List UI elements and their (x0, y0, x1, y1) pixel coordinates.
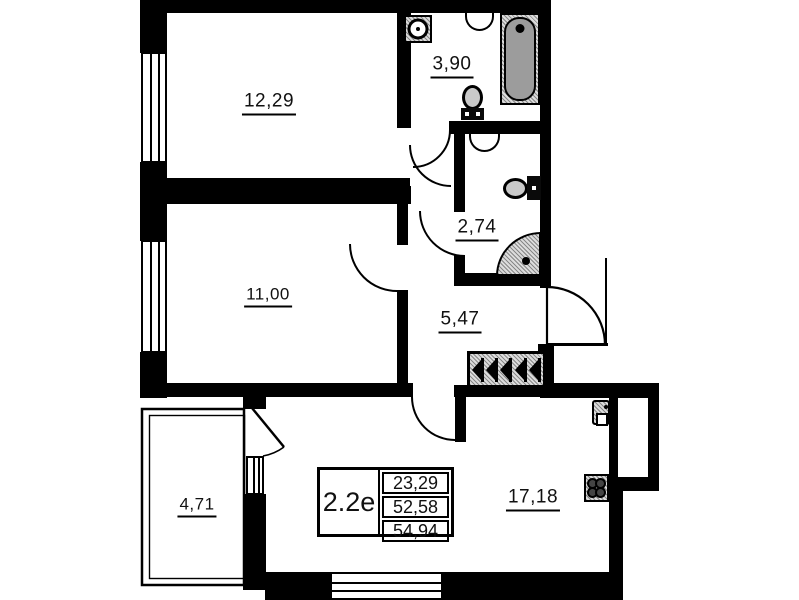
shower-drain (522, 257, 530, 265)
door-leaf (455, 397, 466, 442)
hanger-icon (486, 358, 498, 382)
door-arc-icon (263, 447, 284, 456)
room-label-hall: 5,47 (439, 309, 482, 334)
stove-icon (584, 474, 609, 502)
wall-segment (449, 121, 545, 134)
room-label-bedroom1: 12,29 (242, 91, 296, 116)
wall-segment (397, 204, 408, 245)
window-mullion (150, 54, 152, 161)
wall-segment (397, 290, 408, 384)
window-mullion (150, 242, 152, 351)
wall-segment (397, 186, 411, 204)
room-label-balcony: 4,71 (177, 495, 216, 518)
room-label-kitchen-living: 17,18 (506, 487, 560, 512)
sink-icon (465, 13, 494, 31)
tank-detail (476, 112, 480, 116)
window-mullion (258, 458, 260, 493)
window-icon (141, 240, 167, 353)
hanger-icon (500, 358, 512, 382)
window-mullion (253, 458, 255, 493)
washing-machine-icon (404, 15, 432, 43)
wall-segment (265, 572, 331, 600)
door-arc-icon (350, 244, 397, 291)
wall-segment (540, 383, 658, 398)
window-mullion (158, 242, 160, 351)
wall-segment (243, 494, 266, 590)
unit-type-label: 2.2е (320, 470, 380, 534)
window-mullion (158, 54, 160, 161)
window-mullion (332, 582, 441, 584)
hanger-icon (529, 358, 541, 382)
wall-segment (648, 383, 659, 491)
wall-segment (243, 390, 266, 409)
window-mullion (332, 590, 441, 592)
wall-segment (140, 383, 413, 397)
wall-segment (140, 0, 550, 13)
hanger-icon (472, 358, 484, 382)
door-arc-icon (413, 130, 450, 167)
shower-icon (496, 232, 541, 276)
room-label-bedroom2: 11,00 (244, 285, 292, 308)
unit-area-total: 54,94 (382, 520, 449, 542)
burner (595, 487, 606, 498)
room-label-bathroom: 3,90 (431, 54, 474, 79)
sink-basin (596, 413, 608, 426)
window-icon (330, 572, 443, 600)
wall-segment (442, 572, 623, 600)
unit-info-box: 2.2е 23,29 52,58 54,94 (317, 467, 454, 537)
tank-detail (465, 112, 469, 116)
door-arc-icon (412, 397, 455, 440)
toilet-icon (503, 178, 528, 199)
unit-area-rooms: 23,29 (382, 472, 449, 494)
unit-areas: 23,29 52,58 54,94 (380, 470, 451, 534)
toilet-tank (461, 108, 484, 120)
wall-segment (140, 0, 167, 53)
window-icon (141, 52, 167, 163)
washer-dot (416, 27, 420, 31)
window-icon (246, 456, 264, 495)
sink-icon (469, 134, 500, 152)
wall-segment (454, 134, 465, 212)
sink-faucet (604, 405, 608, 409)
room-label-wc: 2,74 (456, 217, 499, 242)
wall-segment (140, 178, 410, 204)
hanger-icon (515, 358, 527, 382)
wall-segment (540, 0, 551, 288)
tank-detail (532, 186, 536, 190)
door-arc-icon (547, 287, 605, 345)
bathtub-icon (500, 13, 540, 105)
door-arc-icon (410, 145, 451, 186)
kitchen-sink-icon (592, 400, 610, 425)
wardrobe-icon (467, 351, 546, 388)
toilet-tank (527, 176, 541, 200)
wall-segment (609, 397, 618, 477)
toilet-icon (462, 85, 483, 110)
balcony-door-leaf (252, 408, 284, 447)
floor-plan: 12,29 11,00 3,90 2,74 5,47 4,71 17,18 2.… (0, 0, 799, 600)
bathtub-faucet (516, 24, 525, 33)
unit-area-living: 52,58 (382, 496, 449, 518)
